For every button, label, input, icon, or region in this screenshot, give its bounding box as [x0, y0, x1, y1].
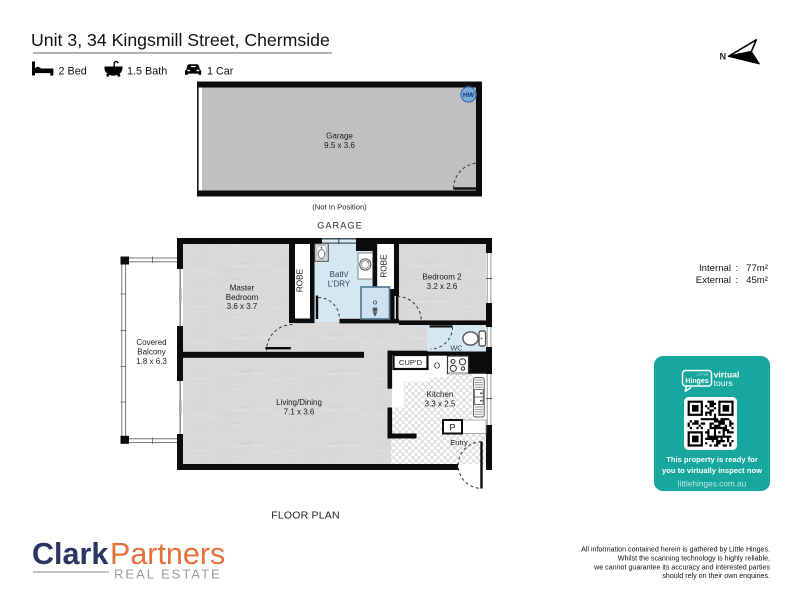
svg-text:3.3 x 2.5: 3.3 x 2.5	[425, 399, 456, 408]
svg-text::: :	[736, 263, 739, 274]
svg-text:Clark: Clark	[32, 537, 108, 571]
svg-text:1 Car: 1 Car	[207, 66, 234, 78]
svg-text:Covered: Covered	[136, 338, 166, 347]
svg-text:HW: HW	[463, 92, 475, 99]
svg-text:LITTLE: LITTLE	[697, 373, 709, 377]
svg-text:3.2 x 2.6: 3.2 x 2.6	[427, 282, 458, 291]
svg-text:should rely on their own enqui: should rely on their own enquiries.	[662, 572, 770, 580]
svg-text:FLOOR PLAN: FLOOR PLAN	[271, 510, 340, 522]
svg-text:WC: WC	[450, 344, 463, 353]
svg-text:O: O	[434, 362, 440, 371]
svg-text:1.8 x 6.3: 1.8 x 6.3	[136, 357, 167, 366]
svg-text:ROBE: ROBE	[379, 254, 388, 278]
svg-text:Balcony: Balcony	[137, 347, 165, 356]
svg-text:Garage: Garage	[326, 132, 353, 141]
svg-text:This property is ready for: This property is ready for	[666, 455, 758, 464]
svg-text:L’DRY: L’DRY	[328, 280, 351, 289]
svg-text:you to virtually inspect now: you to virtually inspect now	[662, 466, 762, 475]
svg-text:1.5 Bath: 1.5 Bath	[127, 66, 167, 78]
svg-text:ROBE: ROBE	[296, 268, 305, 292]
svg-text:3.6 x 3.7: 3.6 x 3.7	[227, 302, 258, 311]
svg-text:CUP’D: CUP’D	[399, 358, 423, 367]
svg-text:Hinges: Hinges	[685, 378, 708, 385]
svg-text:tours: tours	[714, 378, 733, 388]
svg-text:45m²: 45m²	[746, 275, 769, 286]
svg-text:Whilst the scanning technology: Whilst the scanning technology is highly…	[618, 554, 770, 562]
svg-text:Bath/: Bath/	[330, 270, 349, 279]
svg-text:77m²: 77m²	[746, 263, 769, 274]
svg-text:Internal: Internal	[699, 263, 731, 274]
svg-text:littlehinges.com.au: littlehinges.com.au	[678, 479, 747, 489]
svg-text:External: External	[696, 275, 731, 286]
svg-text:we cannot guarantee its accura: we cannot guarantee its accuracy and int…	[593, 563, 770, 571]
svg-text:Master: Master	[230, 284, 255, 293]
svg-text:N: N	[720, 52, 727, 62]
svg-text:7.1 x 3.6: 7.1 x 3.6	[284, 407, 315, 416]
svg-text:Living/Dining: Living/Dining	[276, 398, 322, 407]
svg-text:Bedroom 2: Bedroom 2	[422, 273, 462, 282]
svg-text:Bedroom: Bedroom	[226, 293, 259, 302]
svg-text:REAL ESTATE: REAL ESTATE	[114, 567, 222, 582]
svg-text:(Not In Position): (Not In Position)	[312, 203, 367, 212]
svg-text:All information contained here: All information contained herein is gath…	[581, 546, 770, 554]
svg-text:Entry: Entry	[450, 438, 468, 447]
svg-text:9.5 x 3.6: 9.5 x 3.6	[324, 141, 355, 150]
svg-text:Kitchen: Kitchen	[427, 390, 454, 399]
svg-text:2 Bed: 2 Bed	[59, 66, 87, 78]
svg-text::: :	[736, 275, 739, 286]
svg-text:GARAGE: GARAGE	[317, 220, 363, 230]
svg-text:P: P	[449, 423, 455, 433]
svg-text:Unit 3, 34 Kingsmill Street, C: Unit 3, 34 Kingsmill Street, Chermside	[31, 30, 330, 50]
